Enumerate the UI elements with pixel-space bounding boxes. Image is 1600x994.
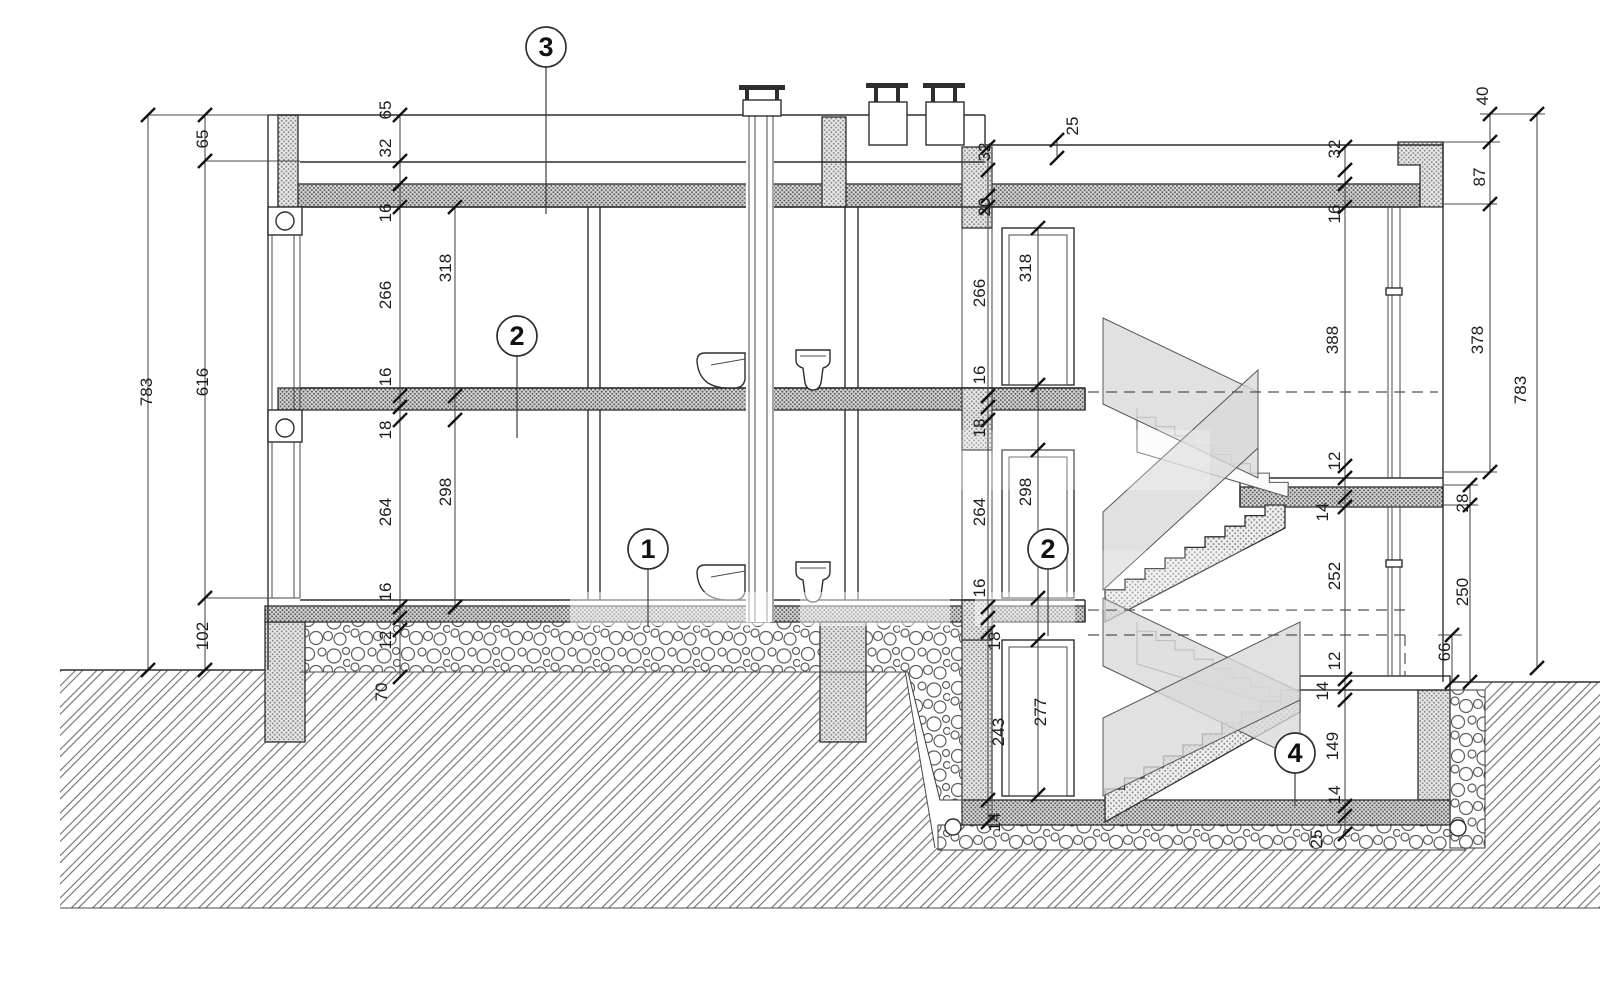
- callout-number: 2: [1040, 534, 1055, 564]
- dimension-label: 16: [1325, 205, 1344, 224]
- dimension-label: 616: [193, 368, 212, 396]
- dimension-label: 318: [1016, 254, 1035, 282]
- foundation-pier-left: [265, 622, 305, 742]
- dimension-label: 250: [1453, 578, 1472, 606]
- dimension-label: 102: [193, 622, 212, 650]
- dimension-label: 264: [970, 498, 989, 526]
- callout-number: 3: [538, 32, 553, 62]
- vent-cap: [739, 85, 785, 90]
- roller-blind-mid: [276, 419, 294, 437]
- dimension-label: 277: [1031, 698, 1050, 726]
- dimension-label: 87: [1470, 168, 1489, 187]
- window-transom-lower: [1386, 560, 1402, 567]
- section-drawing: 7836561610265321626616182641612703182983…: [0, 0, 1600, 994]
- dimension-label: 149: [1323, 732, 1342, 760]
- dimension-label: 18: [376, 421, 395, 440]
- dimension-label: 32: [376, 139, 395, 158]
- dimension-label: 32: [1325, 140, 1344, 159]
- dimension-label: 266: [376, 281, 395, 309]
- dimension-label: 12: [1325, 452, 1344, 471]
- dimension-label: 16: [376, 368, 395, 387]
- drainage-pipe-left: [945, 819, 961, 835]
- dimension-label: 25: [1307, 830, 1326, 849]
- dimension-label: 264: [376, 498, 395, 526]
- basement-floor-slab: [962, 800, 1450, 825]
- dimension-label: 66: [1435, 643, 1454, 662]
- dimension-label: 16: [376, 204, 395, 223]
- pipe-shaft: [739, 85, 785, 622]
- dimension-label: 378: [1468, 326, 1487, 354]
- callout-number: 1: [640, 534, 655, 564]
- callout-number: 4: [1287, 738, 1302, 768]
- toilet-front-upper: [796, 350, 830, 390]
- dimension-label: 32: [975, 143, 994, 162]
- dimension-label: 25: [1063, 117, 1082, 136]
- dimension-label: 783: [137, 378, 156, 406]
- callout-number: 2: [509, 321, 524, 351]
- dimension-label: 12: [376, 631, 395, 650]
- dimension-label: 16: [970, 579, 989, 598]
- foundation-pier-middle: [820, 622, 866, 742]
- drainage-pipe-right: [1450, 820, 1466, 836]
- gravel-bed-basement: [938, 825, 1465, 850]
- roof-chimney-1: [866, 83, 908, 145]
- blueprint-page: 7836561610265321626616182641612703182983…: [0, 0, 1600, 994]
- dimension-label: 783: [1511, 376, 1530, 404]
- roller-blind-top: [276, 212, 294, 230]
- dimension-label: 12: [1325, 652, 1344, 671]
- dimension-label: 318: [436, 254, 455, 282]
- window-transom-upper: [1386, 288, 1402, 295]
- dimension-label: 18: [985, 632, 1004, 651]
- dimension-label: 14: [985, 813, 1004, 832]
- dimension-label: 28: [1453, 494, 1472, 513]
- basement-wall-right: [1418, 690, 1450, 810]
- roof-slab: [278, 184, 1420, 207]
- dimension-label: 18: [970, 419, 989, 438]
- dimension-label: 14: [1313, 682, 1332, 701]
- dimension-label: 14: [1325, 786, 1344, 805]
- toilet-side-upper: [697, 353, 745, 388]
- dimension-label: 298: [436, 478, 455, 506]
- roof-chimney-2: [923, 83, 965, 145]
- dimension-label: 20: [975, 198, 994, 217]
- facade-right: [1386, 142, 1443, 682]
- dimension-label: 40: [1473, 87, 1492, 106]
- dimension-label: 388: [1323, 326, 1342, 354]
- dimension-label: 243: [989, 718, 1008, 746]
- dimension-label: 252: [1325, 562, 1344, 590]
- dimension-label: 65: [376, 101, 395, 120]
- dimension-label: 16: [970, 366, 989, 385]
- dimension-label: 16: [376, 583, 395, 602]
- dimension-label: 266: [970, 279, 989, 307]
- dimension-label: 298: [1016, 478, 1035, 506]
- dimension-label: 70: [372, 683, 391, 702]
- dimension-label: 14: [1313, 503, 1332, 522]
- dimension-label: 65: [193, 130, 212, 149]
